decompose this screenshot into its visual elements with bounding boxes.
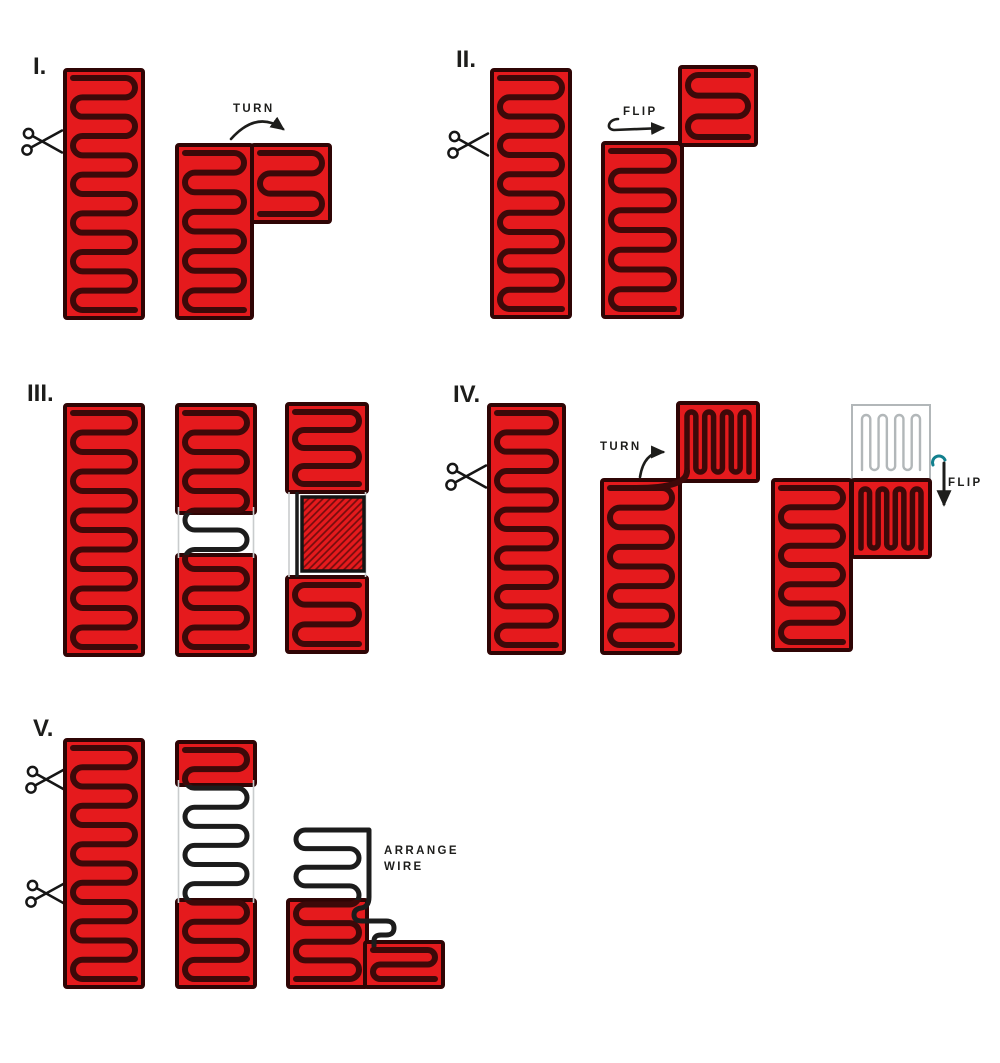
step-5: V. ARRANGE WIRE — [26, 715, 459, 987]
arrange-wire-label-line1: ARRANGE — [384, 845, 459, 857]
panel-with-flipped-square — [773, 405, 930, 650]
heating-panel — [177, 145, 252, 318]
step-4-numeral: IV. — [453, 381, 480, 408]
cut-panel-exposed-wire — [177, 405, 255, 655]
turned-piece — [252, 145, 330, 222]
flip-arrow — [609, 119, 663, 130]
folded-panel — [287, 404, 367, 652]
step-1: I. TURN — [22, 53, 330, 318]
step-3: III. — [27, 380, 367, 655]
heating-panel — [65, 405, 143, 655]
heating-panel — [65, 740, 143, 987]
heating-panel — [492, 70, 570, 317]
step-2-numeral: II. — [456, 46, 476, 73]
scissors-icon — [448, 132, 488, 158]
flip-label: FLIP — [948, 477, 983, 489]
scissors-icon — [26, 767, 66, 793]
folded-tape-square — [302, 497, 364, 571]
heating-panel — [489, 405, 564, 653]
step-3-numeral: III. — [27, 380, 54, 407]
cut-panel-exposed-wire — [177, 742, 255, 987]
turn-arrow — [231, 121, 283, 139]
cut-and-rearrange-diagram: I. TURN II. FLIP — [0, 0, 1000, 1063]
heating-panel — [65, 70, 143, 318]
arrange-wire-label-line2: WIRE — [384, 861, 424, 873]
step-2: II. FLIP — [448, 46, 756, 317]
turn-label: TURN — [233, 103, 275, 115]
scissors-icon — [26, 881, 66, 907]
step-5-numeral: V. — [33, 715, 53, 742]
scissors-icon — [446, 464, 486, 490]
diagram-canvas: I. TURN II. FLIP — [0, 0, 1000, 1063]
ghost-wire — [862, 415, 920, 470]
scissors-icon — [22, 129, 62, 155]
turn-arrow — [640, 452, 663, 477]
flip-label: FLIP — [623, 106, 658, 118]
step-1-numeral: I. — [33, 53, 46, 80]
turn-label: TURN — [600, 441, 642, 453]
heating-panel — [603, 143, 682, 317]
step-4: IV. TURN FLIP — [446, 381, 982, 653]
flipped-piece — [680, 67, 756, 145]
